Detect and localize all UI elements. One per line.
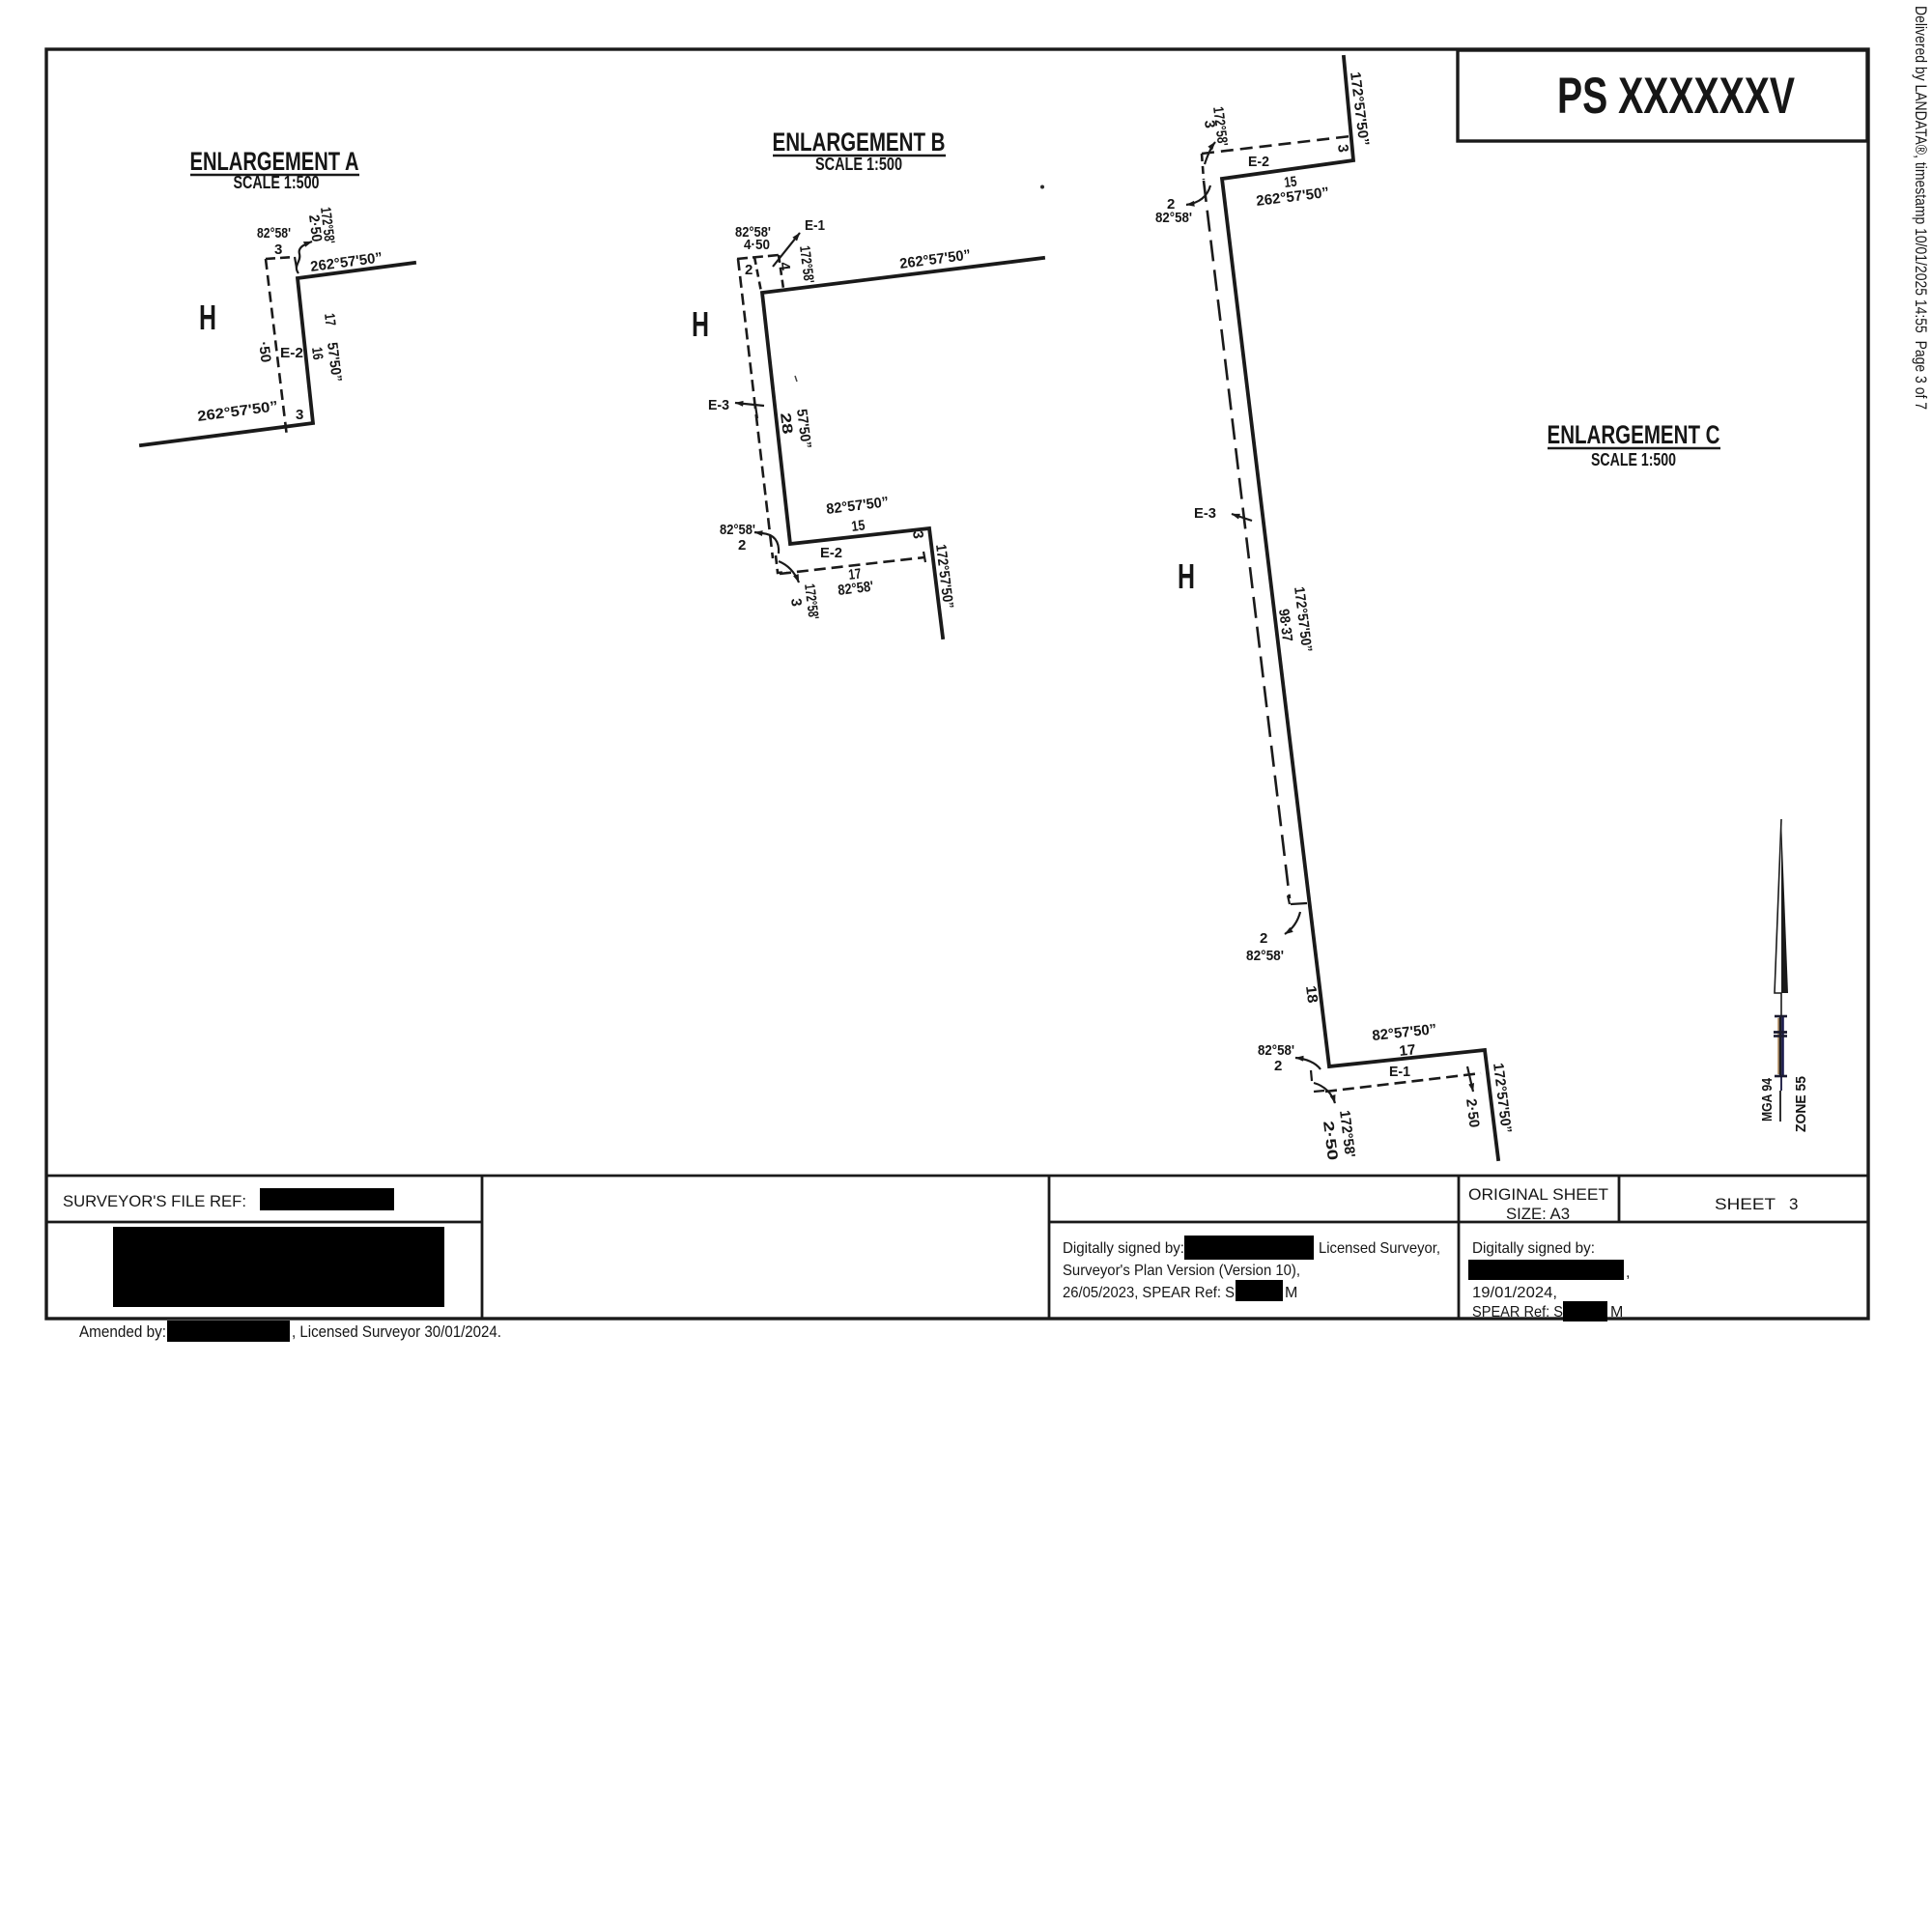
svg-text:82°58': 82°58' xyxy=(1258,1042,1294,1059)
svg-text:E-2: E-2 xyxy=(280,345,303,361)
svg-text:3: 3 xyxy=(296,407,303,423)
svg-text:18: 18 xyxy=(1302,984,1321,1004)
svg-text:2·50: 2·50 xyxy=(305,213,325,242)
svg-text:ORIGINAL SHEET: ORIGINAL SHEET xyxy=(1468,1185,1608,1204)
svg-text:3: 3 xyxy=(1789,1195,1798,1213)
svg-text:16: 16 xyxy=(308,346,326,360)
svg-text:Amended by:: Amended by: xyxy=(79,1322,166,1341)
svg-text:Digitally signed by:: Digitally signed by: xyxy=(1063,1240,1184,1257)
svg-text:17: 17 xyxy=(321,312,338,327)
svg-text:Licensed Surveyor,: Licensed Surveyor, xyxy=(1319,1240,1440,1257)
svg-text:E-1: E-1 xyxy=(805,217,825,234)
svg-text:M: M xyxy=(1285,1285,1297,1301)
svg-text:Delivered by LANDATA®, timesta: Delivered by LANDATA®, timestamp 10/01/2… xyxy=(1912,6,1930,410)
svg-text:Digitally signed by:: Digitally signed by: xyxy=(1472,1240,1595,1257)
svg-text:2: 2 xyxy=(1260,930,1267,947)
svg-text:SURVEYOR'S FILE REF:: SURVEYOR'S FILE REF: xyxy=(63,1192,246,1210)
svg-text:2: 2 xyxy=(738,537,746,554)
svg-text:2·50: 2·50 xyxy=(1463,1097,1483,1128)
svg-text:82°58': 82°58' xyxy=(257,225,291,241)
svg-text:15: 15 xyxy=(850,517,866,535)
svg-text:ENLARGEMENT C: ENLARGEMENT C xyxy=(1548,420,1720,449)
svg-text:82°58': 82°58' xyxy=(1246,948,1284,964)
svg-text:PS XXXXXXV: PS XXXXXXV xyxy=(1557,68,1795,125)
svg-text:17: 17 xyxy=(1399,1041,1417,1060)
svg-text:H: H xyxy=(1178,556,1195,596)
svg-text:26/05/2023, SPEAR Ref: S: 26/05/2023, SPEAR Ref: S xyxy=(1063,1285,1235,1301)
svg-text:, Licensed Surveyor 30/01/2024: , Licensed Surveyor 30/01/2024. xyxy=(292,1322,501,1341)
svg-text:4·50: 4·50 xyxy=(744,237,770,253)
svg-text:Surveyor's Plan Version (Versi: Surveyor's Plan Version (Version 10), xyxy=(1063,1263,1300,1279)
svg-text:19/01/2024,: 19/01/2024, xyxy=(1472,1285,1557,1301)
svg-text:M: M xyxy=(1610,1304,1623,1321)
svg-text:E-1: E-1 xyxy=(1389,1064,1410,1080)
svg-text:ENLARGEMENT B: ENLARGEMENT B xyxy=(773,128,946,156)
svg-text:E-3: E-3 xyxy=(1194,505,1216,522)
svg-text:,: , xyxy=(1626,1264,1630,1281)
svg-text:SCALE 1:500: SCALE 1:500 xyxy=(234,173,320,192)
svg-text:28: 28 xyxy=(777,412,796,435)
svg-text:·50: ·50 xyxy=(255,340,274,363)
svg-text:SCALE 1:500: SCALE 1:500 xyxy=(1591,450,1676,469)
svg-text:2: 2 xyxy=(1274,1058,1282,1074)
svg-text:H: H xyxy=(692,304,709,344)
svg-text:SPEAR Ref: S: SPEAR Ref: S xyxy=(1472,1304,1563,1321)
svg-text:SCALE 1:500: SCALE 1:500 xyxy=(815,155,902,174)
svg-text:ENLARGEMENT A: ENLARGEMENT A xyxy=(190,147,359,176)
svg-text:82°58': 82°58' xyxy=(1155,210,1192,226)
svg-text:E-2: E-2 xyxy=(1248,154,1269,170)
svg-text:SIZE: A3: SIZE: A3 xyxy=(1506,1205,1570,1223)
svg-text:82°58': 82°58' xyxy=(720,522,755,538)
svg-text:2: 2 xyxy=(745,262,753,278)
svg-text:E-2: E-2 xyxy=(820,545,842,561)
svg-text:H: H xyxy=(199,298,216,337)
svg-text:3: 3 xyxy=(274,241,282,258)
svg-text:E-3: E-3 xyxy=(708,397,729,413)
svg-text:SHEET: SHEET xyxy=(1715,1195,1776,1213)
svg-text:MGA 94: MGA 94 xyxy=(1759,1077,1776,1122)
svg-text:ZONE 55: ZONE 55 xyxy=(1793,1076,1809,1132)
